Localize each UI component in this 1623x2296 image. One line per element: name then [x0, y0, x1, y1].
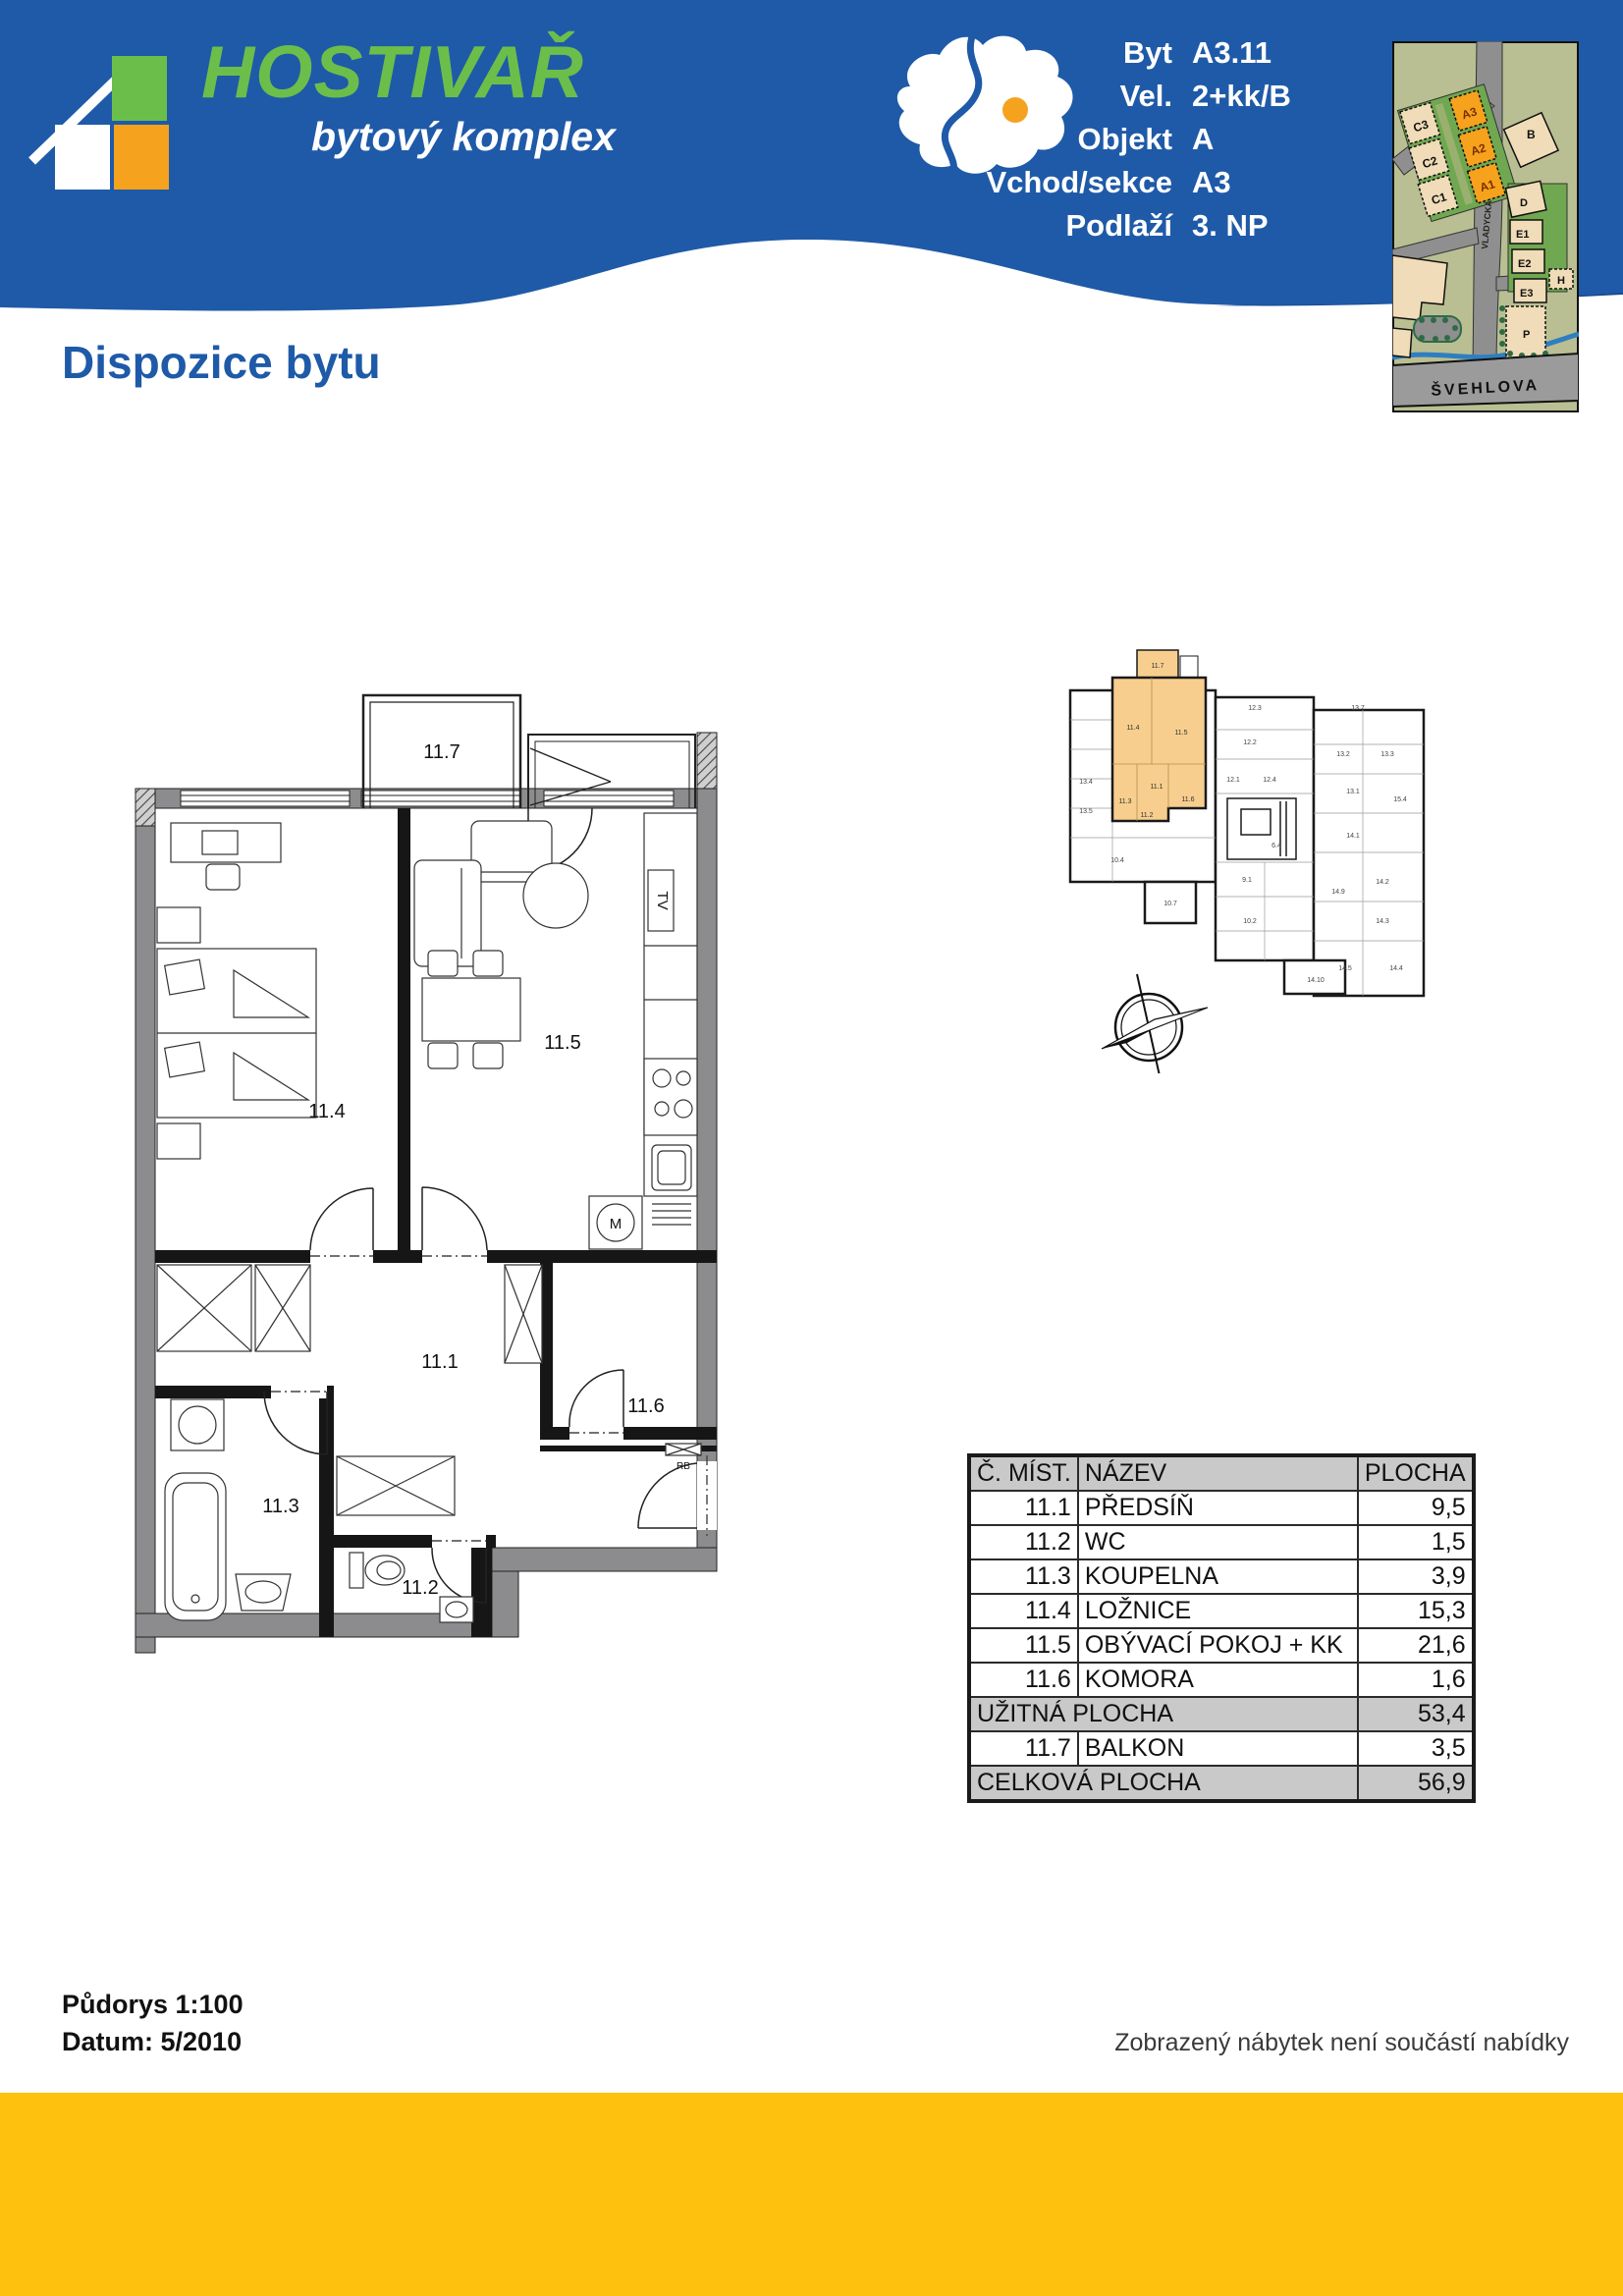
info-value: A3.11: [1192, 31, 1291, 75]
mini-label: 10.4: [1110, 857, 1124, 864]
mini-label: 11.1: [1150, 784, 1163, 791]
mini-label: 13.5: [1079, 808, 1093, 815]
site-map: C3 C2 C1 A3 A2 A1 B D E1 E2 E3 P H: [1392, 41, 1579, 412]
map-label: E2: [1518, 258, 1531, 270]
table-row: 11.2 WC 1,5: [969, 1525, 1474, 1559]
room-label-obyvaci: 11.5: [544, 1032, 580, 1054]
room-name: KOMORA: [1078, 1663, 1358, 1697]
rb-label: RB: [676, 1461, 690, 1472]
floor-plan: 11.7 11.4 11.5 11.1 11.6 11.3 11.2 TV M …: [116, 676, 744, 1687]
unit-info-panel: Byt A3.11 Vel. 2+kk/B Objekt A Vchod/sek…: [935, 31, 1291, 247]
logo-white-square: [55, 125, 110, 190]
mini-label: 13.1: [1346, 789, 1360, 795]
room-area: 1,6: [1358, 1663, 1474, 1697]
room-area: 3,5: [1358, 1731, 1474, 1766]
mini-label: 12.2: [1243, 739, 1257, 746]
room-area: 1,5: [1358, 1525, 1474, 1559]
map-label: H: [1557, 275, 1565, 287]
washer-label: M: [610, 1216, 622, 1232]
room-num: 11.3: [969, 1559, 1078, 1594]
total-value: 53,4: [1358, 1697, 1474, 1731]
map-label: P: [1523, 329, 1530, 341]
mini-label: 14.1: [1346, 833, 1360, 840]
map-label: D: [1520, 197, 1528, 209]
area-table: Č. MÍST. NÁZEV PLOCHA 11.1 PŘEDSÍŇ 9,5 1…: [967, 1453, 1476, 1803]
info-label: Vel.: [935, 75, 1172, 118]
table-row: 11.7 BALKON 3,5: [969, 1731, 1474, 1766]
footer-disclaimer: Zobrazený nábytek není součástí nabídky: [1114, 2029, 1569, 2057]
brand: HOSTIVAŘ bytový komplex: [201, 35, 790, 157]
room-label-loznice: 11.4: [308, 1101, 345, 1122]
info-label: Byt: [935, 31, 1172, 75]
mini-label: 12.3: [1248, 705, 1262, 712]
page-title: Dispozice bytu: [62, 336, 381, 389]
overview-plan: 11.7 11.4 11.5 11.1 11.3 11.2 11.6 12.3 …: [1058, 636, 1432, 1073]
table-row: 11.6 KOMORA 1,6: [969, 1663, 1474, 1697]
room-label-koupelna: 11.3: [262, 1496, 298, 1517]
col-header-name: NÁZEV: [1078, 1455, 1358, 1491]
map-label: B: [1527, 128, 1536, 141]
room-label-wc: 11.2: [402, 1577, 438, 1599]
room-num: 11.2: [969, 1525, 1078, 1559]
plan-date: Datum: 5/2010: [62, 2023, 243, 2060]
table-row: 11.1 PŘEDSÍŇ 9,5: [969, 1491, 1474, 1525]
mini-label: 11.5: [1174, 730, 1187, 737]
mini-label: 14.10: [1307, 977, 1325, 984]
mini-label: 14.9: [1331, 889, 1345, 896]
mini-label: 12.4: [1263, 777, 1276, 784]
map-label: E1: [1516, 229, 1529, 241]
col-header-area: PLOCHA: [1358, 1455, 1474, 1491]
total-value: 56,9: [1358, 1766, 1474, 1801]
room-label-balkon: 11.7: [423, 741, 460, 763]
room-name: LOŽNICE: [1078, 1594, 1358, 1628]
tv-label: TV: [654, 891, 671, 909]
mini-label: 11.3: [1118, 798, 1131, 805]
logo-green-square: [112, 56, 167, 121]
room-area: 3,9: [1358, 1559, 1474, 1594]
mini-label: 13.3: [1380, 751, 1394, 758]
table-row: 11.4 LOŽNICE 15,3: [969, 1594, 1474, 1628]
mini-label: 14.3: [1376, 918, 1389, 925]
room-name: KOUPELNA: [1078, 1559, 1358, 1594]
room-area: 21,6: [1358, 1628, 1474, 1663]
mini-label: 12.1: [1226, 777, 1240, 784]
room-label-predsin: 11.1: [421, 1351, 458, 1373]
mini-label: 14.5: [1338, 965, 1352, 972]
mini-label: 11.7: [1151, 663, 1163, 670]
info-value: 2+kk/B: [1192, 75, 1291, 118]
mini-label: 13.4: [1079, 779, 1093, 786]
mini-label: 14.4: [1389, 965, 1403, 972]
room-num: 11.6: [969, 1663, 1078, 1697]
info-label: Vchod/sekce: [935, 161, 1172, 204]
room-area: 9,5: [1358, 1491, 1474, 1525]
mini-label: 11.2: [1140, 812, 1153, 819]
mini-label: 13.2: [1336, 751, 1350, 758]
footer-left: Půdorys 1:100 Datum: 5/2010: [62, 1986, 243, 2060]
info-value: 3. NP: [1192, 204, 1291, 247]
room-name: OBÝVACÍ POKOJ + KK: [1078, 1628, 1358, 1663]
info-value: A: [1192, 118, 1291, 161]
mini-label: 10.2: [1243, 918, 1257, 925]
brand-title: HOSTIVAŘ: [201, 35, 790, 109]
room-name: PŘEDSÍŇ: [1078, 1491, 1358, 1525]
logo-orange-square: [114, 125, 169, 190]
plan-scale: Půdorys 1:100: [62, 1986, 243, 2023]
table-row: 11.5 OBÝVACÍ POKOJ + KK 21,6: [969, 1628, 1474, 1663]
mini-label: 15.4: [1393, 796, 1407, 803]
table-total-row: UŽITNÁ PLOCHA 53,4: [969, 1697, 1474, 1731]
room-num: 11.5: [969, 1628, 1078, 1663]
col-header-num: Č. MÍST.: [969, 1455, 1078, 1491]
mini-label: 13.7: [1351, 705, 1365, 712]
table-header-row: Č. MÍST. NÁZEV PLOCHA: [969, 1455, 1474, 1491]
room-num: 11.4: [969, 1594, 1078, 1628]
compass-icon: [1102, 974, 1208, 1073]
mini-label: 11.4: [1126, 725, 1139, 732]
total-label: UŽITNÁ PLOCHA: [969, 1697, 1358, 1731]
room-name: WC: [1078, 1525, 1358, 1559]
mini-label: 14.2: [1376, 879, 1389, 886]
room-num: 11.1: [969, 1491, 1078, 1525]
brand-subtitle: bytový komplex: [311, 117, 790, 157]
info-label: Objekt: [935, 118, 1172, 161]
room-label-komora: 11.6: [627, 1395, 664, 1417]
info-value: A3: [1192, 161, 1291, 204]
info-label: Podlaží: [935, 204, 1172, 247]
total-label: CELKOVÁ PLOCHA: [969, 1766, 1358, 1801]
page: HOSTIVAŘ bytový komplex Byt A3.11 Vel. 2…: [0, 0, 1623, 2296]
mini-label: 6.4: [1271, 843, 1281, 849]
footer-yellow-bar: [0, 2093, 1623, 2296]
map-label: E3: [1520, 288, 1533, 300]
mini-label: 11.6: [1181, 796, 1194, 803]
mini-label: 10.7: [1163, 901, 1177, 907]
room-area: 15,3: [1358, 1594, 1474, 1628]
mini-label: 9.1: [1242, 877, 1252, 884]
room-num: 11.7: [969, 1731, 1078, 1766]
company-logo-icon: [29, 39, 206, 196]
table-row: 11.3 KOUPELNA 3,9: [969, 1559, 1474, 1594]
table-total-row: CELKOVÁ PLOCHA 56,9: [969, 1766, 1474, 1801]
room-name: BALKON: [1078, 1731, 1358, 1766]
